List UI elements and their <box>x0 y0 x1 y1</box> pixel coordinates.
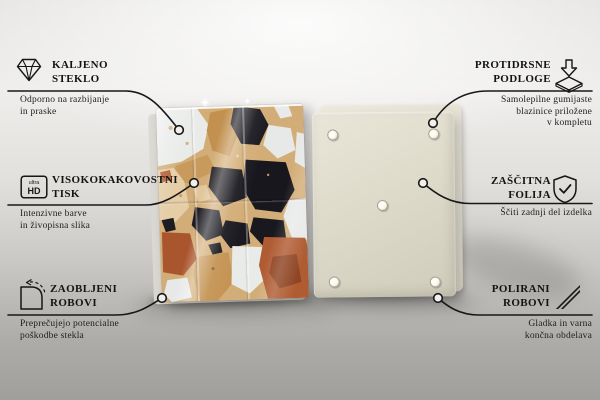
subtitle-line: in praske <box>20 107 109 119</box>
anti-slip-pad-icon <box>554 58 584 93</box>
ultra-hd-icon: ultra HD <box>20 175 48 199</box>
subtitle-line: Samolepilne gumijaste <box>501 95 592 107</box>
subtitle-line: Gladka in varna <box>525 319 592 331</box>
anti-slip-pad <box>430 276 441 287</box>
glass-board-front <box>156 104 309 303</box>
callout-title-anti-slip-pads: PROTIDRSNE PODLOGE <box>475 59 551 86</box>
rounded-corner-icon <box>17 279 47 311</box>
callout-title-tempered-glass: KALJENO STEKLO <box>52 59 108 86</box>
glass-sparkle-icon: ✦ <box>200 96 210 111</box>
callout-subtitle-anti-slip-pads: Samolepilne gumijaste blazinice priložen… <box>501 95 592 130</box>
subtitle-line: Odporno na razbijanje <box>20 95 109 107</box>
title-line: TISK <box>52 188 178 202</box>
glass-sparkle-icon: ✦ <box>244 97 251 106</box>
title-line: ZAŠČITNA <box>491 175 551 189</box>
title-line: PROTIDRSNE <box>475 59 551 73</box>
anti-slip-pad <box>327 129 338 140</box>
diamond-icon <box>15 57 43 83</box>
subtitle-line: blazinice priložene <box>501 107 592 119</box>
callout-subtitle-print: Intenzivne barve in živopisna slika <box>20 209 90 232</box>
callout-title-rounded-edges: ZAOBLJENI ROBOVI <box>50 283 117 310</box>
anti-slip-pad <box>329 276 340 287</box>
callout-title-polished-edges: POLIRANI ROBOVI <box>492 283 550 310</box>
subtitle-line: v kompletu <box>501 118 592 130</box>
board-back-panel <box>312 111 456 297</box>
title-line: ROBOVI <box>50 297 117 311</box>
title-line: STEKLO <box>52 73 108 87</box>
subtitle-line: poškodbe stekla <box>20 331 119 343</box>
subtitle-line: končna obdelava <box>525 331 592 343</box>
subtitle-line: in živopisna slika <box>20 221 90 233</box>
title-line: KALJENO <box>52 59 108 73</box>
callout-subtitle-tempered-glass: Odporno na razbijanje in praske <box>20 95 109 118</box>
callout-subtitle-protective-film: Ščiti zadnji del izdelka <box>500 208 592 220</box>
title-line: ZAOBLJENI <box>50 283 117 297</box>
subtitle-line: Intenzivne barve <box>20 209 90 221</box>
title-line: ROBOVI <box>492 297 550 311</box>
title-line: FOLIJA <box>491 189 551 203</box>
subtitle-line: Ščiti zadnji del izdelka <box>500 208 592 220</box>
callout-subtitle-polished-edges: Gladka in varna končna obdelava <box>525 319 592 342</box>
product-feature-infographic: ✦ ✦ K <box>0 0 600 400</box>
title-line: POLIRANI <box>492 283 550 297</box>
anti-slip-pad <box>377 200 388 211</box>
callout-subtitle-rounded-edges: Preprečujejo potencialne poškodbe stekla <box>20 319 119 342</box>
title-line: PODLOGE <box>475 73 551 87</box>
callout-title-protective-film: ZAŠČITNA FOLIJA <box>491 175 551 202</box>
callout-title-print: VISOKOKAKOVOSTNI TISK <box>52 174 178 201</box>
title-line: VISOKOKAKOVOSTNI <box>52 174 178 188</box>
anti-slip-pad <box>428 128 439 139</box>
shield-check-icon <box>551 174 579 204</box>
hd-label: HD <box>28 186 41 196</box>
subtitle-line: Preprečujejo potencialne <box>20 319 119 331</box>
polished-edges-icon <box>553 284 581 310</box>
